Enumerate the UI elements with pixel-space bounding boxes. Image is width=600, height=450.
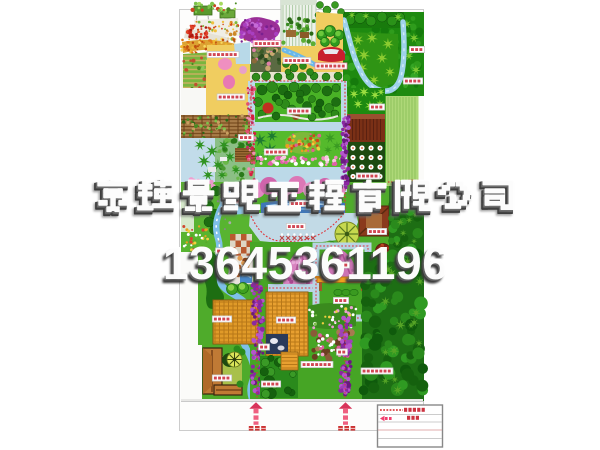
- svg-text:13645361196: 13645361196: [163, 237, 448, 289]
